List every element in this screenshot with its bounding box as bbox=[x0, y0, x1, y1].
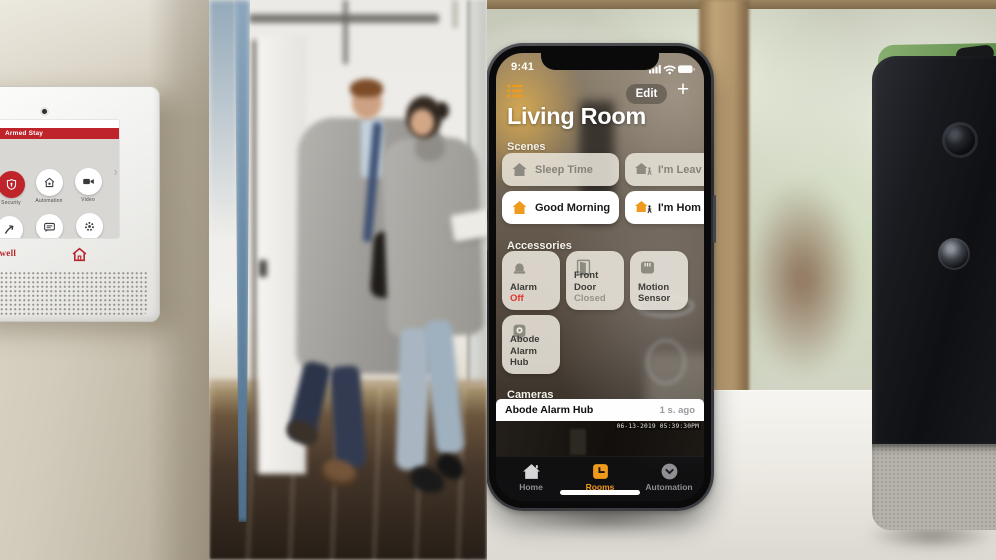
tab-home[interactable]: Home bbox=[496, 462, 566, 492]
doorway-photo bbox=[209, 0, 487, 560]
page-title: Living Room bbox=[507, 103, 646, 130]
house-person-icon bbox=[634, 200, 651, 215]
add-button[interactable]: + bbox=[674, 78, 692, 102]
accessory-name: Front Door bbox=[574, 270, 620, 292]
edit-button[interactable]: Edit bbox=[626, 84, 667, 104]
iota-speaker-fabric bbox=[872, 444, 996, 530]
status-bar-time: 9:41 bbox=[511, 61, 534, 73]
accessory-motion-sensor[interactable]: Motion Sensor bbox=[630, 251, 688, 310]
panel-app-notices[interactable]: Notices bbox=[27, 214, 71, 238]
shield-lock-icon bbox=[0, 171, 25, 198]
scene-im-home[interactable]: I'm Hom bbox=[625, 191, 704, 224]
battery-icon bbox=[678, 65, 695, 73]
panel-home-button[interactable] bbox=[71, 246, 88, 263]
video-camera-icon bbox=[75, 168, 102, 195]
house-icon bbox=[511, 200, 528, 215]
power-button[interactable] bbox=[713, 195, 717, 243]
house-icon bbox=[511, 162, 528, 177]
house-person-icon bbox=[634, 162, 651, 177]
honeywell-panel: Armed Stay Security Automation bbox=[0, 86, 160, 322]
security-panel-photo: Armed Stay Security Automation bbox=[0, 0, 209, 560]
arrow-icon bbox=[0, 216, 23, 238]
accessory-status: Closed bbox=[574, 293, 620, 304]
scenes-section-label: Scenes bbox=[507, 141, 546, 153]
camera-name: Abode Alarm Hub bbox=[505, 404, 593, 416]
notch bbox=[541, 53, 659, 70]
camera-lens-icon bbox=[942, 122, 978, 158]
panel-app-label: Automation bbox=[27, 198, 71, 204]
tab-automation[interactable]: Automation bbox=[634, 462, 704, 492]
panel-app-label: Video bbox=[66, 197, 110, 203]
volume-up-button[interactable] bbox=[487, 179, 488, 211]
home-icon bbox=[36, 169, 63, 196]
armed-status-label: Armed Stay bbox=[5, 130, 43, 137]
scene-im-leaving[interactable]: I'm Leav bbox=[625, 153, 704, 186]
home-indicator[interactable] bbox=[560, 490, 640, 495]
accessory-alarm[interactable]: Alarm Off bbox=[502, 251, 560, 310]
scene-good-morning[interactable]: Good Morning bbox=[502, 191, 619, 224]
accessory-name: Alarm bbox=[510, 282, 556, 293]
panel-app-automation[interactable]: Automation bbox=[27, 169, 71, 204]
home-app-screen: 9:41 bbox=[496, 53, 704, 501]
speaker-grille bbox=[0, 271, 147, 317]
chevron-right-icon[interactable]: › bbox=[114, 164, 118, 179]
accessory-abode-alarm-hub[interactable]: Abode Alarm Hub bbox=[502, 315, 560, 374]
motion-sensor-icon bbox=[638, 258, 657, 277]
tab-rooms[interactable]: Rooms bbox=[565, 462, 635, 492]
camera-card[interactable]: Abode Alarm Hub 1 s. ago 06-13-2019 05:3… bbox=[496, 399, 704, 456]
panel-app-video[interactable]: Video bbox=[66, 168, 110, 203]
automation-tab-icon bbox=[660, 462, 679, 481]
accessory-front-door[interactable]: Front Door Closed bbox=[566, 251, 624, 310]
rooms-tab-icon bbox=[591, 462, 610, 481]
scene-sleep-time[interactable]: Sleep Time bbox=[502, 153, 619, 186]
gear-icon bbox=[76, 213, 103, 238]
camera-timestamp: 06-13-2019 05:39:30PM bbox=[615, 423, 701, 430]
accessory-name: Motion Sensor bbox=[638, 282, 684, 304]
honeywell-logo: Honeywell bbox=[0, 248, 16, 258]
camera-last-update: 1 s. ago bbox=[660, 405, 695, 416]
wifi-icon bbox=[665, 66, 675, 70]
panel-app-grid: Security Automation Video bbox=[0, 139, 119, 238]
motion-lens-icon bbox=[938, 238, 970, 270]
camera-header: Abode Alarm Hub 1 s. ago bbox=[496, 399, 704, 421]
armed-status-bar: Armed Stay bbox=[0, 128, 119, 139]
panel-touchscreen: Armed Stay Security Automation bbox=[0, 120, 119, 238]
panel-camera-dot bbox=[42, 109, 47, 114]
accessory-status: Off bbox=[510, 293, 556, 304]
volume-down-button[interactable] bbox=[487, 219, 488, 251]
iphone: 9:41 bbox=[487, 43, 714, 511]
composite-image: Armed Stay Security Automation bbox=[0, 0, 996, 560]
device-photo: 9:41 bbox=[487, 0, 996, 560]
room-list-icon[interactable] bbox=[507, 84, 524, 98]
siren-icon bbox=[510, 258, 529, 277]
accessory-name: Abode Alarm Hub bbox=[510, 334, 556, 368]
home-tab-icon bbox=[522, 462, 541, 481]
message-icon bbox=[36, 214, 63, 238]
mute-switch[interactable] bbox=[487, 149, 488, 167]
iota-smart-hub bbox=[872, 56, 996, 444]
camera-feed: 06-13-2019 05:39:30PM bbox=[496, 421, 704, 456]
panel-app-settings[interactable]: Settings bbox=[67, 213, 111, 238]
